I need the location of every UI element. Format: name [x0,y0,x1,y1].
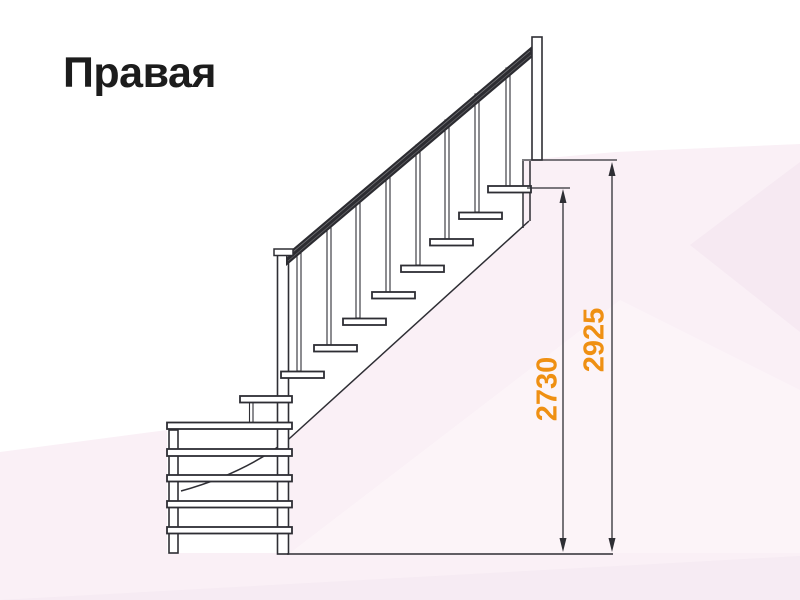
top-post [532,37,542,160]
staircase-diagram-page: Правая 2730 2925 [0,0,800,600]
newel-post [278,255,289,554]
newel-cap [274,249,293,256]
page-title: Правая [63,52,216,95]
treads-winder [167,396,292,534]
treads-upper-flight [281,186,531,378]
dimension-label-2730: 2730 [534,357,563,422]
handrail [286,46,532,266]
dimension-label-2925: 2925 [581,308,610,373]
